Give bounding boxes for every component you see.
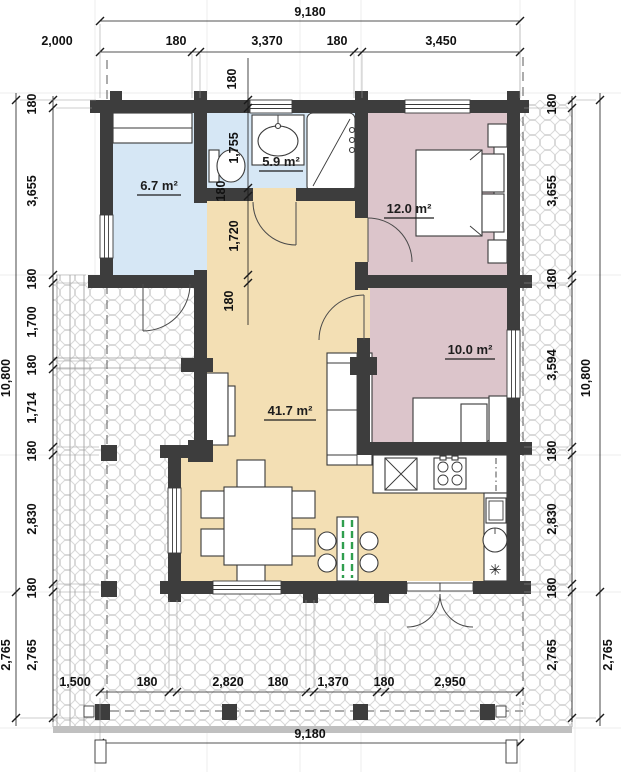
dim-bottom-6: 2,950 xyxy=(434,675,465,689)
dim-mid-1: 1,755 xyxy=(227,132,241,163)
dim-left-8: 180 xyxy=(25,578,39,599)
room-label-living: 41.7 m² xyxy=(268,403,313,418)
fridge-symbol: ✳ xyxy=(489,562,502,579)
dim-anchor xyxy=(506,740,517,763)
dim-bottom-3: 180 xyxy=(268,675,289,689)
bar-stool xyxy=(360,532,378,550)
dim-right-6: 180 xyxy=(545,578,559,599)
terrace-post xyxy=(480,704,495,720)
window-bedroom1-north xyxy=(405,100,470,113)
dim-anchor xyxy=(95,740,106,763)
room-label-entry: 6.7 m² xyxy=(140,178,178,193)
dim-bottom-2: 2,820 xyxy=(212,675,243,689)
dim-right-3: 3,594 xyxy=(545,349,559,380)
dim-left-total: 10,800 xyxy=(0,359,13,397)
window-bedroom2-east xyxy=(507,330,520,398)
room-label-bath: 5.9 m² xyxy=(262,154,300,169)
floor-plan-canvas: 9,180 2,000 180 3,370 180 3,450 180 1,75… xyxy=(0,0,621,772)
dim-right-total: 10,800 xyxy=(579,359,593,397)
dim-right-terrace: 2,765 xyxy=(601,639,615,670)
dim-left-1: 3,655 xyxy=(25,175,39,206)
room-label-bedroom2: 10.0 m² xyxy=(448,342,493,357)
terrace-post-base xyxy=(84,706,94,717)
bar-stool xyxy=(318,532,336,550)
dim-bottom-5: 180 xyxy=(374,675,395,689)
dim-top-3: 180 xyxy=(327,34,348,48)
shower xyxy=(307,113,355,192)
dim-left-7: 2,830 xyxy=(25,503,39,534)
dim-right-1: 3,655 xyxy=(545,175,559,206)
window-dining-south xyxy=(213,581,281,594)
dim-left-9: 2,765 xyxy=(25,639,39,670)
wardrobe xyxy=(113,113,192,143)
terrace-post xyxy=(95,704,110,720)
dim-bottom-4: 1,370 xyxy=(317,675,348,689)
dim-mid-3: 1,720 xyxy=(227,220,241,251)
dim-left-6: 180 xyxy=(25,441,39,462)
terrace-post xyxy=(222,704,237,720)
dim-left-4: 180 xyxy=(25,355,39,376)
dim-bottom-0: 1,500 xyxy=(59,675,90,689)
dim-top-overall: 9,180 xyxy=(294,5,325,19)
bar-stool xyxy=(360,554,378,572)
dim-right-2: 180 xyxy=(545,269,559,290)
dim-top-1: 180 xyxy=(166,34,187,48)
dim-left-terrace: 2,765 xyxy=(0,639,13,670)
window-entry-west xyxy=(100,215,113,258)
window-bath-north xyxy=(250,100,292,113)
window-dining-west xyxy=(168,488,181,553)
dim-left-3: 1,700 xyxy=(25,306,39,337)
dim-top-0: 2,000 xyxy=(41,34,72,48)
dim-left-2: 180 xyxy=(25,269,39,290)
terrace-post-base xyxy=(496,706,506,717)
dim-mid-2: 180 xyxy=(214,181,228,202)
dim-right-5: 2,830 xyxy=(545,503,559,534)
floor-plan-page: 9,180 2,000 180 3,370 180 3,450 180 1,75… xyxy=(0,0,621,772)
dim-top-2: 3,370 xyxy=(251,34,282,48)
room-label-bedroom1: 12.0 m² xyxy=(387,201,432,216)
dim-top-4: 3,450 xyxy=(425,34,456,48)
dim-bottom-1: 180 xyxy=(137,675,158,689)
stove xyxy=(434,458,466,489)
dim-left-0: 180 xyxy=(25,94,39,115)
dim-left-5: 1,714 xyxy=(25,392,39,423)
dim-bottom-overall: 9,180 xyxy=(294,727,325,741)
bar-stool xyxy=(318,554,336,572)
terrace-post xyxy=(101,445,117,461)
dim-right-4: 180 xyxy=(545,441,559,462)
terrace-post xyxy=(353,704,368,720)
dim-mid-4: 180 xyxy=(222,291,236,312)
dim-right-7: 2,765 xyxy=(545,639,559,670)
terrace-post xyxy=(101,581,117,597)
dim-mid-0: 180 xyxy=(225,69,239,90)
dim-right-0: 180 xyxy=(545,94,559,115)
